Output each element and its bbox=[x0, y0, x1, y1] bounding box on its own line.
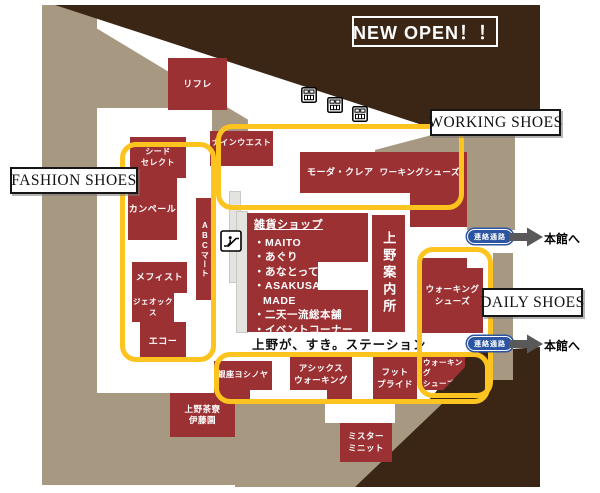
info-center-label: 上野案内所 bbox=[380, 231, 398, 316]
ueno-info-center: 上野案内所 bbox=[372, 215, 405, 332]
main-building-label-south: 本館へ bbox=[544, 337, 580, 354]
corridor-minit bbox=[325, 402, 395, 423]
corridor-top bbox=[97, 108, 212, 137]
store-label: ミニット bbox=[348, 443, 384, 454]
passage-label: 連絡通路 bbox=[474, 232, 506, 242]
store-label: 伊藤園 bbox=[189, 415, 216, 426]
arrow-right-icon bbox=[509, 333, 543, 360]
zone-label-text: WORKING SHOES bbox=[428, 114, 562, 132]
locker-icon bbox=[301, 87, 317, 108]
ueno-floor-map: リフレ ナインウエスト シード セレクト カンペール ABCマート メフィスト … bbox=[0, 0, 600, 493]
store-label: ミスター bbox=[348, 431, 384, 442]
zakka-notch bbox=[318, 262, 368, 290]
escalator-icon bbox=[220, 230, 242, 257]
zone-label-daily-shoes: DAILY SHOES bbox=[482, 288, 583, 317]
new-open-banner: NEW OPEN！！ bbox=[352, 16, 498, 47]
main-building-label-north: 本館へ bbox=[544, 230, 580, 247]
floor-bottom-left bbox=[97, 393, 170, 485]
store-mister-minit: ミスター ミニット bbox=[340, 423, 392, 462]
passage-pill-south: 連絡通路 bbox=[467, 336, 513, 351]
zakka-item: ・二天一流総本舗 bbox=[254, 308, 368, 323]
passage-label: 連絡通路 bbox=[474, 339, 506, 349]
store-rifure: リフレ bbox=[168, 58, 227, 110]
new-open-text: NEW OPEN！！ bbox=[353, 19, 497, 45]
zone-label-fashion-shoes: FASHION SHOES bbox=[10, 167, 138, 194]
locker-icon bbox=[327, 97, 343, 118]
zakka-item: MADE bbox=[254, 294, 368, 309]
station-caption: 上野が、すき。ステーション bbox=[252, 334, 402, 353]
floor-right-block bbox=[467, 125, 515, 230]
locker-icon bbox=[352, 106, 368, 127]
zakka-item: ・MAITO bbox=[254, 236, 368, 251]
floor-bottom-mid bbox=[170, 437, 235, 485]
zone-label-text: FASHION SHOES bbox=[11, 172, 137, 190]
zone-label-text: DAILY SHOES bbox=[480, 294, 585, 312]
zakka-title: 雑貨ショップ bbox=[254, 218, 368, 233]
arrow-right-icon bbox=[509, 226, 543, 253]
zone-label-working-shoes: WORKING SHOES bbox=[430, 109, 561, 136]
store-label: リフレ bbox=[183, 78, 212, 90]
zone-outline-south bbox=[214, 352, 490, 404]
store-label: 上野茶寮 bbox=[184, 404, 220, 415]
passage-pill-north: 連絡通路 bbox=[467, 229, 513, 244]
zone-outline-working bbox=[216, 124, 464, 210]
